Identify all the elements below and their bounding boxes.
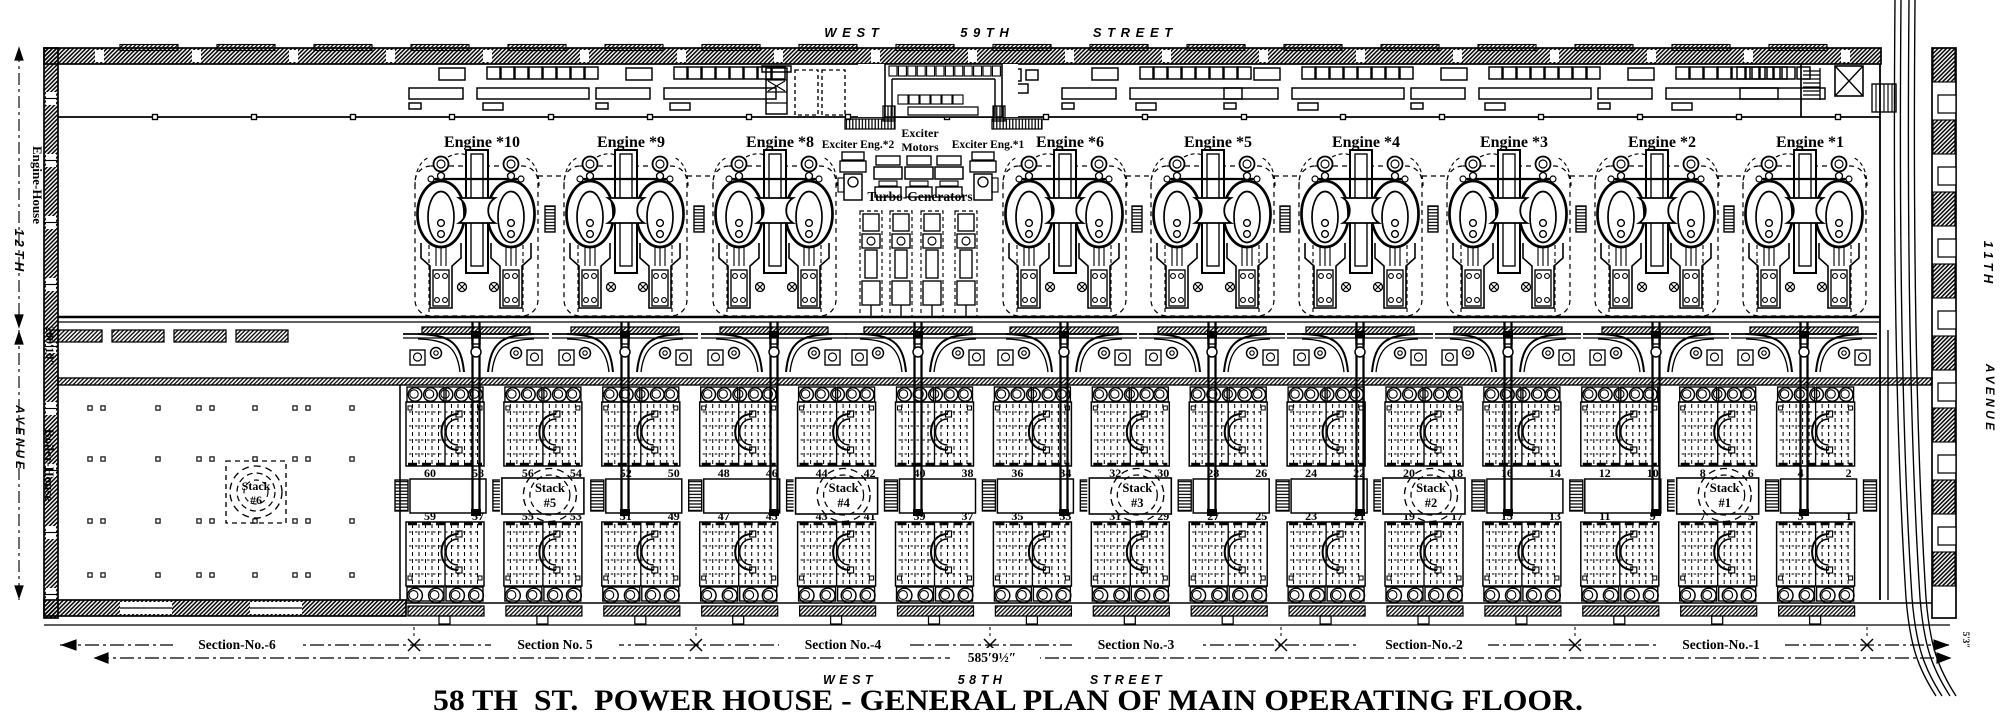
- svg-text:Engine-House: Engine-House: [30, 146, 45, 224]
- svg-text:Exciter Eng.*1: Exciter Eng.*1: [952, 139, 1025, 151]
- svg-text:1 1 T H: 1 1 T H: [1981, 241, 1996, 284]
- svg-text:39: 39: [914, 509, 926, 523]
- svg-text:21: 21: [1353, 509, 1365, 523]
- svg-text:Engine *6: Engine *6: [1036, 134, 1104, 151]
- svg-text:23: 23: [1305, 509, 1317, 523]
- svg-text:#2: #2: [1425, 496, 1438, 510]
- svg-text:Engine *10: Engine *10: [444, 134, 520, 151]
- svg-text:Stack: Stack: [829, 481, 859, 495]
- svg-text:3: 3: [1798, 509, 1804, 523]
- svg-text:36: 36: [1011, 466, 1023, 480]
- svg-text:26: 26: [1255, 466, 1267, 480]
- svg-text:60: 60: [424, 466, 436, 480]
- svg-text:Exciter Eng.*2: Exciter Eng.*2: [822, 139, 895, 151]
- svg-text:34: 34: [1059, 466, 1071, 480]
- svg-text:13: 13: [1549, 509, 1561, 523]
- svg-text:Section No.-4: Section No.-4: [805, 637, 882, 652]
- svg-text:37: 37: [962, 509, 974, 523]
- svg-text:58 TH ST. POWER HOUSE - GENE: 58 TH ST. POWER HOUSE - GENERAL PLAN OF …: [433, 684, 1583, 715]
- svg-text:585′9½″: 585′9½″: [968, 650, 1016, 665]
- svg-text:Engine *3: Engine *3: [1480, 134, 1548, 151]
- svg-text:50: 50: [668, 466, 680, 480]
- svg-text:A V E N U E: A V E N U E: [13, 404, 25, 469]
- svg-text:5′3″: 5′3″: [1961, 632, 1971, 649]
- svg-text:16: 16: [1501, 466, 1513, 480]
- svg-text:#4: #4: [837, 496, 850, 510]
- svg-text:33: 33: [1059, 509, 1071, 523]
- svg-text:14: 14: [1549, 466, 1561, 480]
- svg-text:Engine *2: Engine *2: [1628, 134, 1696, 151]
- svg-text:28: 28: [1207, 466, 1219, 480]
- svg-text:200′10″: 200′10″: [43, 326, 57, 366]
- svg-text:W E S T: W E S T: [824, 25, 879, 40]
- svg-text:24: 24: [1305, 466, 1317, 480]
- svg-text:Engine *5: Engine *5: [1184, 134, 1252, 151]
- svg-text:58: 58: [472, 466, 484, 480]
- svg-text:52: 52: [620, 466, 632, 480]
- svg-text:#6: #6: [250, 493, 262, 507]
- svg-text:Section No. 5: Section No. 5: [517, 637, 593, 652]
- svg-text:10: 10: [1647, 466, 1659, 480]
- svg-text:Section No.-3: Section No.-3: [1098, 637, 1175, 652]
- svg-text:49: 49: [668, 509, 680, 523]
- svg-text:#1: #1: [1718, 496, 1731, 510]
- svg-text:Section-No.-1: Section-No.-1: [1682, 637, 1760, 652]
- svg-text:57: 57: [472, 509, 484, 523]
- svg-text:25: 25: [1255, 509, 1267, 523]
- svg-text:45: 45: [766, 509, 778, 523]
- svg-text:4: 4: [1798, 466, 1804, 480]
- svg-text:Boiler-House: Boiler-House: [42, 429, 57, 502]
- svg-text:22: 22: [1353, 466, 1365, 480]
- svg-text:12: 12: [1599, 466, 1611, 480]
- svg-text:Section-No.-2: Section-No.-2: [1385, 637, 1463, 652]
- svg-text:1: 1: [1846, 509, 1852, 523]
- svg-text:Engine *8: Engine *8: [746, 134, 814, 151]
- svg-text:Stack: Stack: [1710, 481, 1740, 495]
- svg-text:Engine *1: Engine *1: [1776, 134, 1844, 151]
- svg-text:A V E N U E: A V E N U E: [1983, 363, 1997, 431]
- svg-text:51: 51: [620, 509, 632, 523]
- svg-text:Stack: Stack: [535, 481, 565, 495]
- svg-text:2: 2: [1846, 466, 1852, 480]
- svg-text:S T R E E T: S T R E E T: [1093, 25, 1173, 40]
- svg-text:46: 46: [766, 466, 778, 480]
- svg-text:48: 48: [718, 466, 730, 480]
- svg-text:Stack: Stack: [1416, 481, 1446, 495]
- svg-text:Stack: Stack: [242, 479, 271, 493]
- svg-text:Stack: Stack: [1122, 481, 1152, 495]
- svg-text:1 2 T H: 1 2 T H: [12, 229, 27, 272]
- svg-text:#3: #3: [1131, 496, 1144, 510]
- svg-text:Engine *9: Engine *9: [597, 134, 665, 151]
- svg-text:59: 59: [424, 509, 436, 523]
- svg-text:40: 40: [914, 466, 926, 480]
- svg-text:Motors: Motors: [901, 140, 939, 154]
- svg-text:#5: #5: [544, 496, 557, 510]
- svg-text:38: 38: [962, 466, 974, 480]
- svg-text:5 9 T H: 5 9 T H: [960, 25, 1010, 40]
- svg-text:Exciter: Exciter: [901, 126, 939, 140]
- svg-text:47: 47: [718, 509, 730, 523]
- svg-text:15: 15: [1501, 509, 1513, 523]
- svg-text:11: 11: [1599, 509, 1610, 523]
- svg-text:27: 27: [1207, 509, 1219, 523]
- svg-text:9: 9: [1650, 509, 1656, 523]
- svg-text:35: 35: [1011, 509, 1023, 523]
- svg-text:Section-No.-6: Section-No.-6: [198, 637, 276, 652]
- svg-text:Engine *4: Engine *4: [1332, 134, 1400, 151]
